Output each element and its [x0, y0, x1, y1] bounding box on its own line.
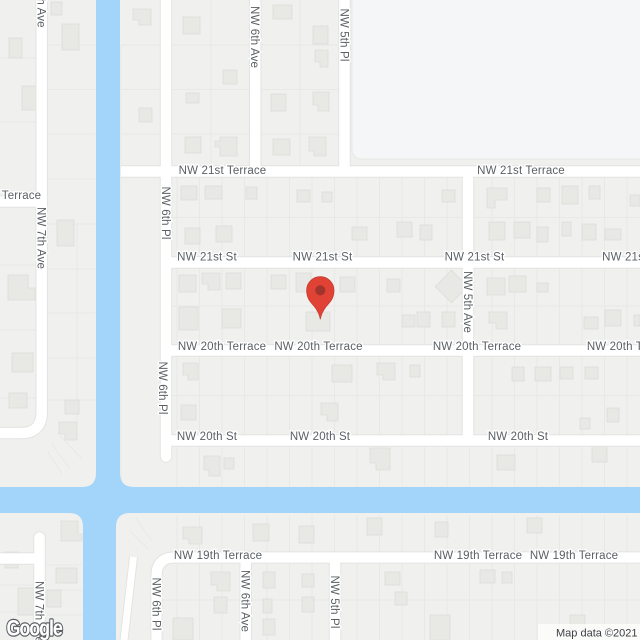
svg-text:NW 19th Terrace: NW 19th Terrace — [434, 550, 522, 562]
svg-text:NW 20th Terrace: NW 20th Terrace — [178, 341, 266, 353]
svg-text:NW 6th Pl: NW 6th Pl — [156, 361, 168, 414]
svg-text:NW 19th Terrace: NW 19th Terrace — [530, 550, 618, 562]
svg-text:h Ave: h Ave — [35, 0, 47, 28]
svg-text:NW 20th St: NW 20th St — [290, 431, 351, 443]
svg-text:NW 21st St: NW 21st St — [177, 252, 237, 264]
svg-text:NW 19th Terrace: NW 19th Terrace — [174, 550, 262, 562]
svg-text:NW 5th Pl: NW 5th Pl — [328, 575, 340, 628]
svg-text:NW 7th Ave: NW 7th Ave — [35, 207, 47, 269]
svg-text:NW 5th Ave: NW 5th Ave — [461, 271, 473, 333]
svg-text:NW 20th Terrace: NW 20th Terrace — [587, 341, 640, 353]
svg-text:NW 20th St: NW 20th St — [488, 431, 549, 443]
svg-text:Map data ©2021: Map data ©2021 — [556, 628, 638, 640]
svg-text:NW 6th Pl: NW 6th Pl — [149, 577, 161, 630]
svg-text:NW 20th St: NW 20th St — [177, 431, 238, 443]
svg-text:NW 6th Ave: NW 6th Ave — [239, 570, 251, 632]
svg-text:NW 6th Ave: NW 6th Ave — [248, 6, 260, 68]
svg-text:NW 21st St: NW 21st St — [293, 252, 353, 264]
svg-text:NW 21st St: NW 21st St — [445, 252, 505, 264]
svg-text:NW 20th Terrace: NW 20th Terrace — [274, 341, 362, 353]
svg-text:NW 21st Terrace: NW 21st Terrace — [477, 165, 565, 177]
svg-text:NW 20th Terrace: NW 20th Terrace — [433, 341, 521, 353]
svg-text:Google: Google — [7, 617, 63, 640]
svg-text:NW 21st St: NW 21st St — [602, 252, 640, 264]
svg-text:Terrace: Terrace — [2, 190, 41, 202]
svg-text:NW 21st Terrace: NW 21st Terrace — [179, 165, 267, 177]
svg-text:NW 5th Pl: NW 5th Pl — [338, 8, 350, 61]
svg-text:NW 6th Pl: NW 6th Pl — [159, 186, 171, 239]
